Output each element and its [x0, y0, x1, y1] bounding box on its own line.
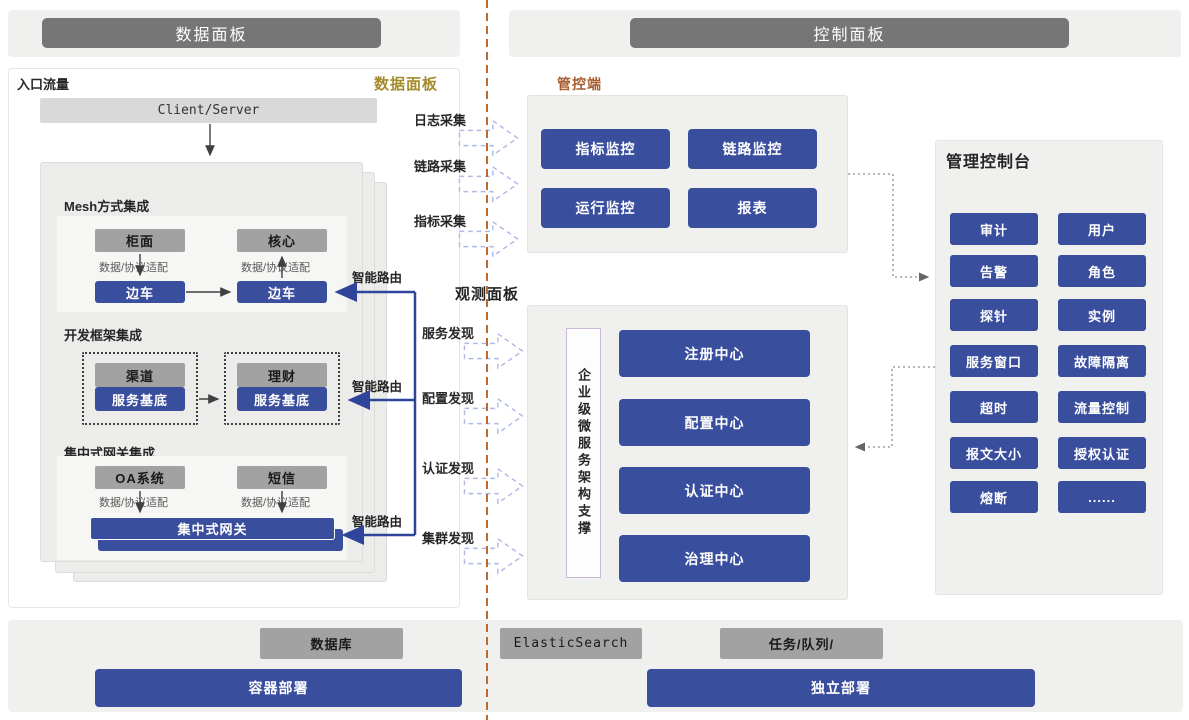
report-button: 报表	[688, 188, 817, 228]
flow-arrow-icon	[457, 219, 521, 259]
trace-monitor-button: 链路监控	[688, 129, 817, 169]
database-bar: 数据库	[260, 628, 403, 659]
user-button: 用户	[1058, 213, 1146, 245]
ingress-traffic-label: 入口流量	[17, 74, 69, 93]
authz-button: 授权认证	[1058, 437, 1146, 469]
alert-button: 告警	[950, 255, 1038, 287]
auth-center-button: 认证中心	[619, 467, 810, 514]
audit-button: 审计	[950, 213, 1038, 245]
data-plane-label: 数据面板	[374, 73, 438, 94]
adapter-label: 数据/协议适配	[99, 259, 168, 275]
adapter-label: 数据/协议适配	[241, 494, 310, 510]
standalone-deploy-bar: 独立部署	[647, 669, 1035, 707]
mesh-section-title: Mesh方式集成	[64, 196, 149, 215]
message-size-button: 报文大小	[950, 437, 1038, 469]
flow-arrow-icon	[457, 118, 521, 158]
counter-node: 柜面	[95, 229, 185, 252]
task-queue-bar: 任务/队列/	[720, 628, 883, 659]
central-gateway-node: 集中式网关	[90, 517, 335, 540]
adapter-label: 数据/协议适配	[241, 259, 310, 275]
monitoring-box	[527, 95, 848, 253]
service-window-button: 服务窗口	[950, 345, 1038, 377]
flow-arrow-icon	[462, 396, 526, 436]
client-server-bar: Client/Server	[40, 98, 377, 123]
runtime-monitor-button: 运行监控	[541, 188, 670, 228]
channel-node: 渠道	[95, 363, 185, 387]
config-center-button: 配置中心	[619, 399, 810, 446]
wealth-node: 理财	[237, 363, 327, 387]
timeout-button: 超时	[950, 391, 1038, 423]
oa-system-node: OA系统	[95, 466, 185, 489]
management-console-title: 管理控制台	[946, 148, 1031, 172]
fault-isolation-button: 故障隔离	[1058, 345, 1146, 377]
enterprise-support-vertical-label: 企业级微服务架构支撑	[566, 328, 601, 578]
elasticsearch-bar: ElasticSearch	[500, 628, 642, 659]
probe-button: 探针	[950, 299, 1038, 331]
instance-button: 实例	[1058, 299, 1146, 331]
sidecar-left-node: 边车	[95, 281, 185, 303]
circuit-breaker-button: 熔断	[950, 481, 1038, 513]
role-button: 角色	[1058, 255, 1146, 287]
sidecar-right-node: 边车	[237, 281, 327, 303]
sms-node: 短信	[237, 466, 327, 489]
framework-section-title: 开发框架集成	[64, 325, 142, 344]
flow-arrow-icon	[462, 466, 526, 506]
service-base-left-node: 服务基底	[95, 387, 185, 411]
observe-panel-label: 观测面板	[455, 283, 519, 304]
smart-route-label: 智能路由	[352, 511, 402, 530]
flow-arrow-icon	[457, 164, 521, 204]
registry-center-button: 注册中心	[619, 330, 810, 377]
control-panel-header: 控制面板	[630, 18, 1069, 48]
smart-route-label: 智能路由	[352, 267, 402, 286]
architecture-diagram: 数据面板 控制面板 入口流量 数据面板 Client/Server Mesh方式…	[0, 0, 1189, 720]
control-endpoint-label: 管控端	[557, 74, 602, 94]
governance-center-button: 治理中心	[619, 535, 810, 582]
flow-arrow-icon	[462, 536, 526, 576]
smart-route-label: 智能路由	[352, 376, 402, 395]
flow-arrow-icon	[462, 331, 526, 371]
data-panel-header: 数据面板	[42, 18, 381, 48]
core-node: 核心	[237, 229, 327, 252]
service-base-right-node: 服务基底	[237, 387, 327, 411]
adapter-label: 数据/协议适配	[99, 494, 168, 510]
traffic-control-button: 流量控制	[1058, 391, 1146, 423]
container-deploy-bar: 容器部署	[95, 669, 462, 707]
metric-monitor-button: 指标监控	[541, 129, 670, 169]
more-button: ......	[1058, 481, 1146, 513]
